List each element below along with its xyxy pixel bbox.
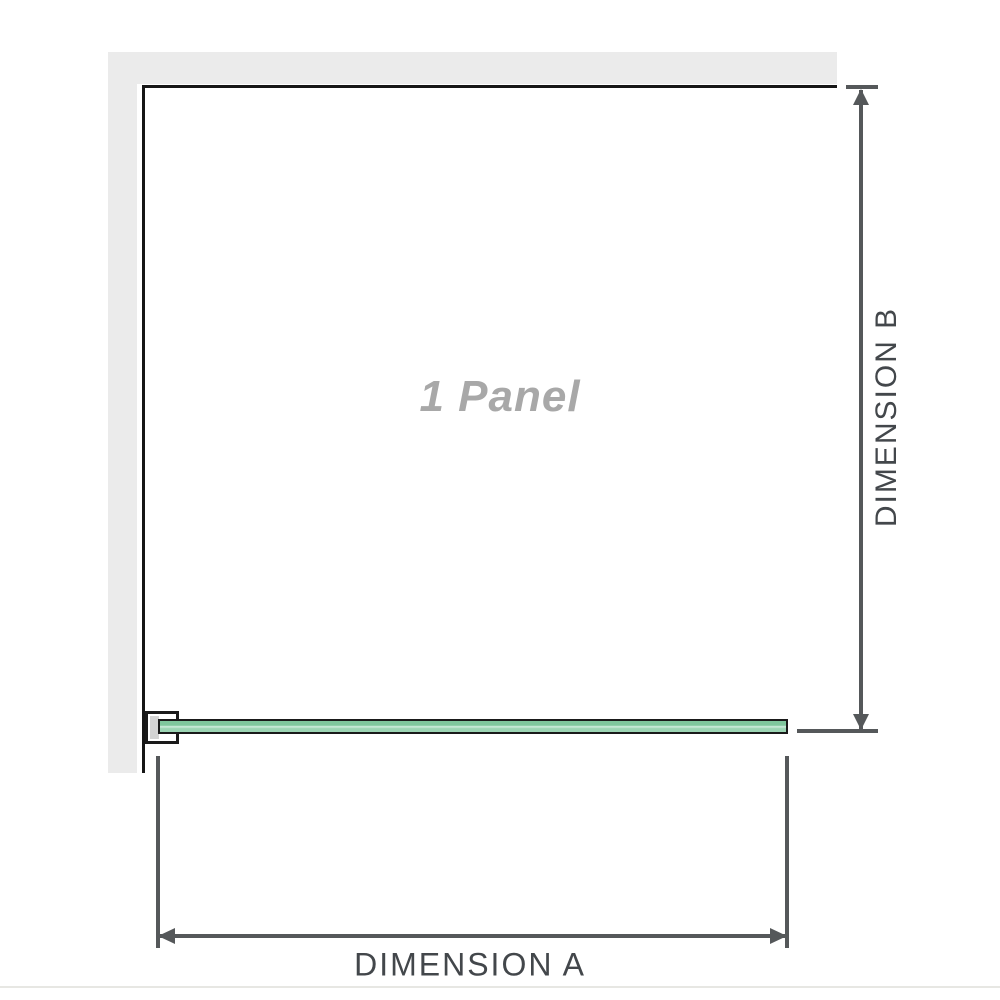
- dimension-b-label: DIMENSION B: [870, 307, 904, 527]
- dimension-b-line: [859, 90, 863, 730]
- arrow-down-icon: [853, 714, 869, 730]
- top-wall-inner-edge: [143, 85, 837, 88]
- page-bottom-rule: [0, 986, 1000, 988]
- arrow-up-icon: [853, 89, 869, 105]
- arrow-left-icon: [158, 928, 175, 944]
- glass-panel-bar: [158, 719, 788, 734]
- dimension-a-left-extension-line: [156, 756, 160, 948]
- arrow-right-icon: [770, 928, 787, 944]
- dimension-a-right-extension-line: [785, 756, 789, 948]
- left-wall: [108, 52, 137, 773]
- panel-count-label: 1 Panel: [300, 372, 700, 422]
- top-wall: [108, 52, 837, 84]
- left-wall-inner-edge: [142, 85, 145, 773]
- dimension-a-label: DIMENSION A: [354, 947, 586, 984]
- dimension-a-line: [159, 934, 787, 938]
- panel-dimension-diagram: 1 Panel DIMENSION B DIMENSION A: [0, 0, 1000, 1000]
